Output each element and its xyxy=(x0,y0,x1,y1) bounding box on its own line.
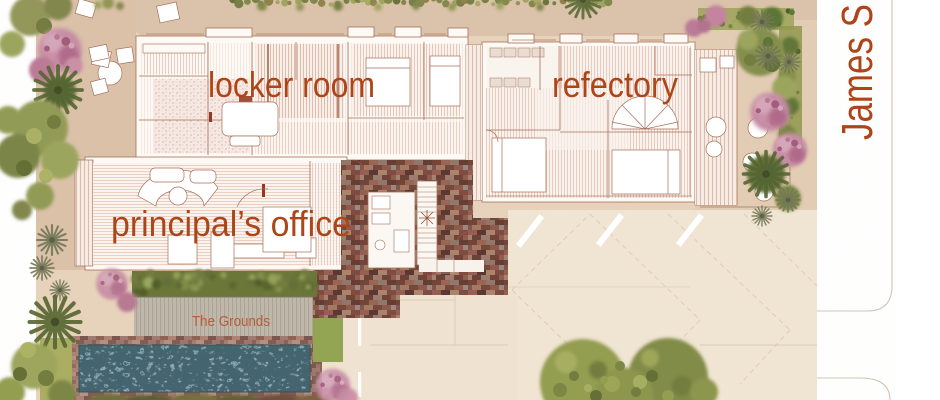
svg-text:James S: James S xyxy=(833,4,882,140)
svg-text:refectory: refectory xyxy=(552,64,678,105)
svg-text:principal’s office: principal’s office xyxy=(111,203,351,244)
svg-text:locker room: locker room xyxy=(208,64,375,105)
